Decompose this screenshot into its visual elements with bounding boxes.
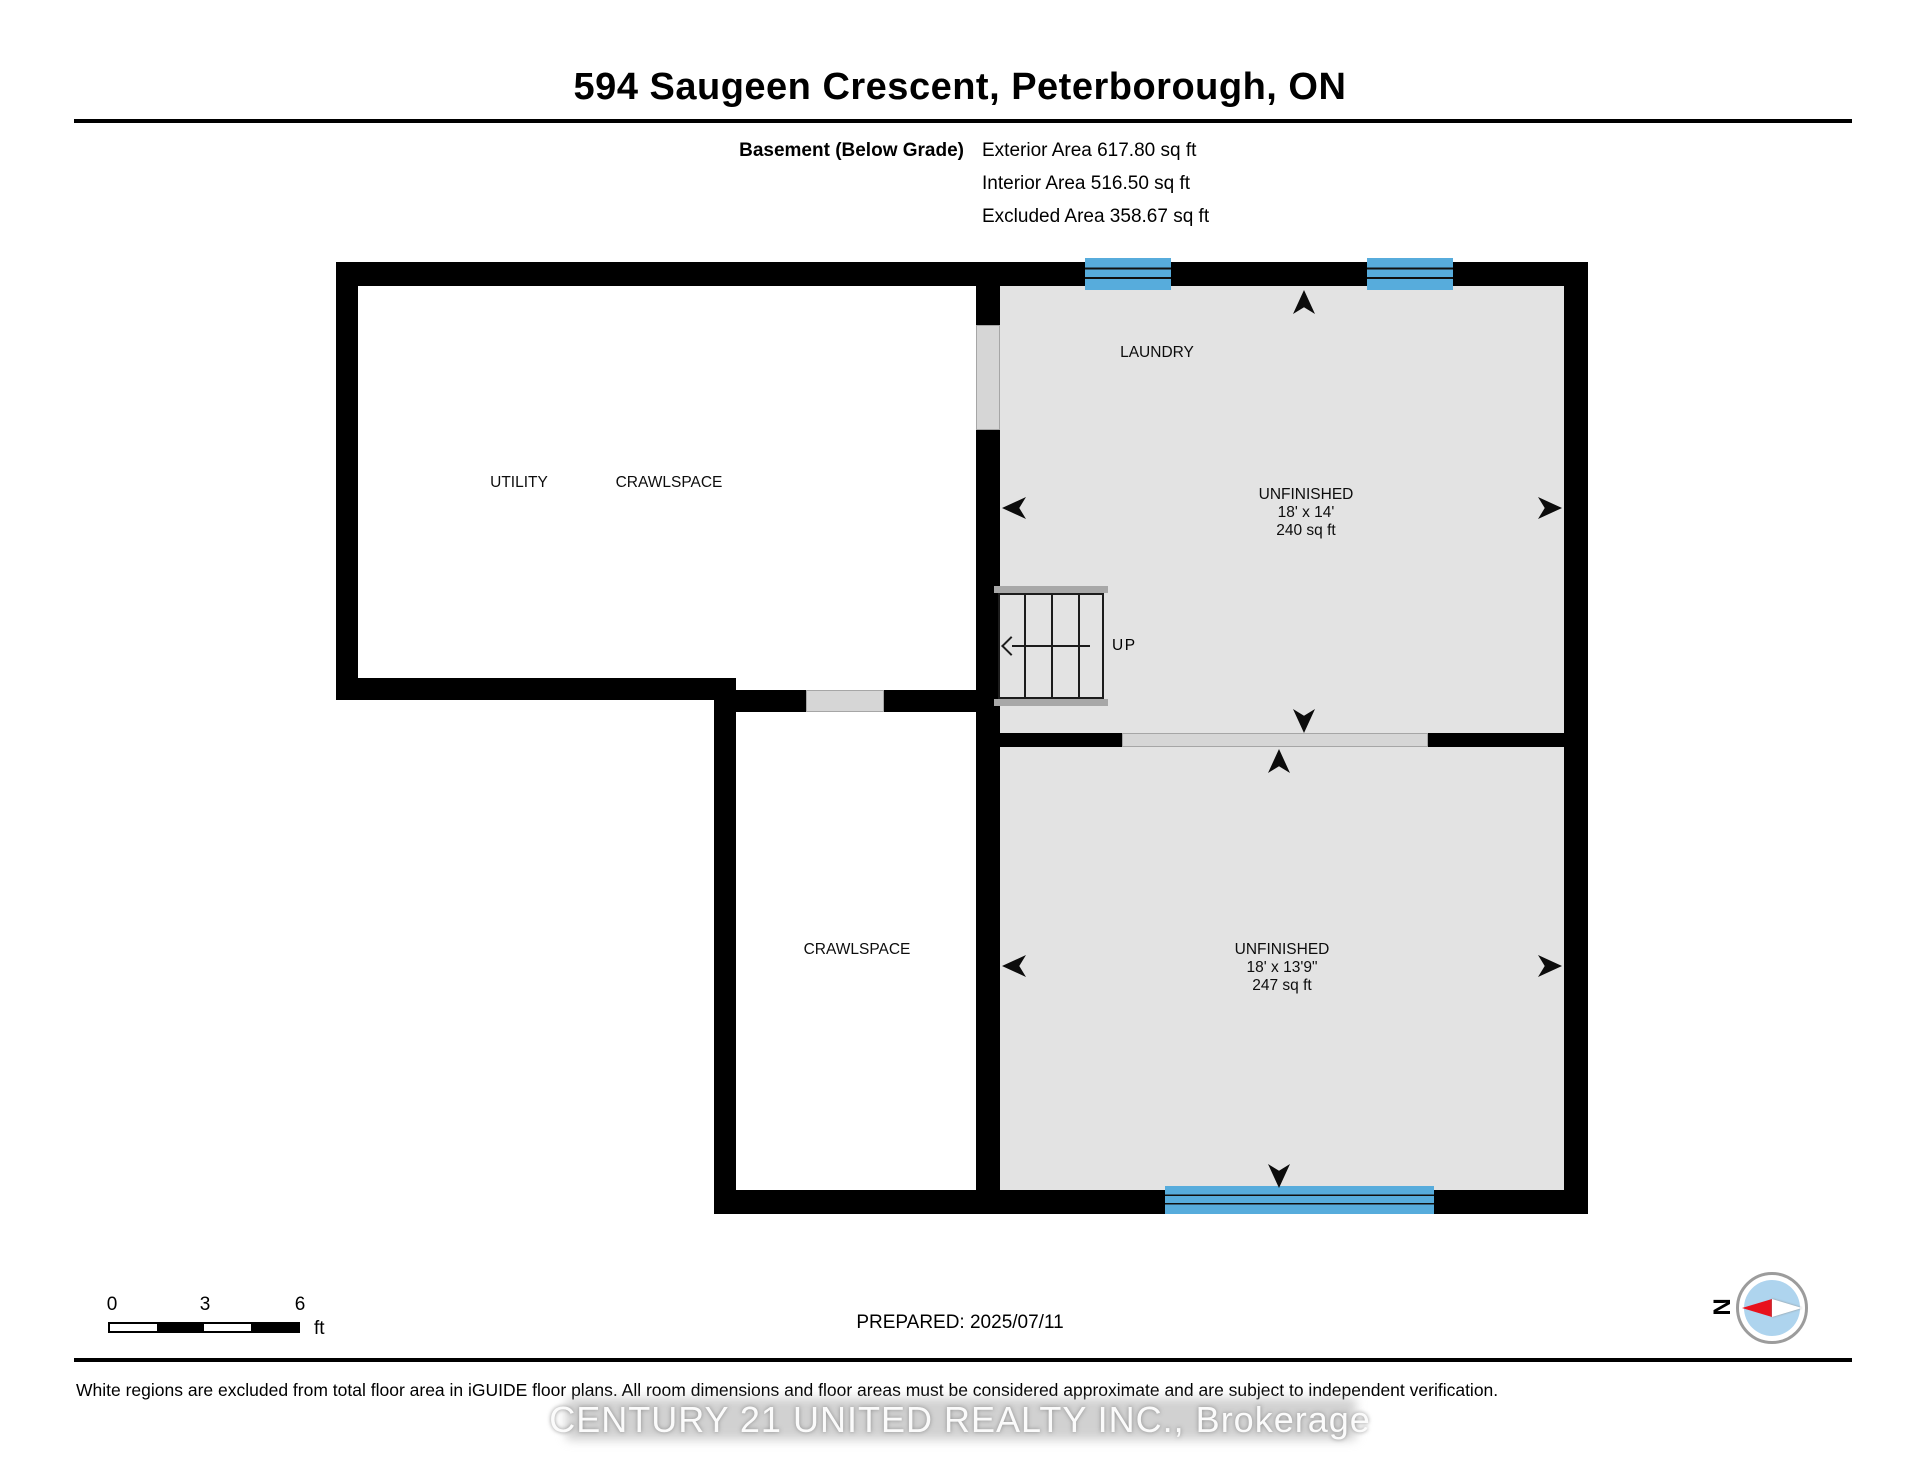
- opening-crawlspace-door: [806, 690, 884, 712]
- compass-north-label: N: [1709, 1292, 1737, 1322]
- watermark-text: CENTURY 21 UNITED REALTY INC., Brokerage: [0, 1399, 1920, 1441]
- excluded-area: Excluded Area 358.67 sq ft: [982, 200, 1209, 233]
- exterior-area: Exterior Area 617.80 sq ft: [982, 134, 1209, 167]
- room-label-utility: UTILITY: [490, 474, 548, 492]
- room-dimensions: 18' x 13'9": [1235, 959, 1330, 977]
- room-name: UNFINISHED: [1235, 941, 1330, 959]
- room-dimensions: 18' x 14': [1259, 504, 1354, 522]
- header-divider: [74, 119, 1852, 123]
- room-name: UNFINISHED: [1259, 486, 1354, 504]
- opening-utility-laundry: [976, 325, 1000, 430]
- compass-north-needle-icon: [1742, 1299, 1772, 1317]
- footer-divider: [74, 1358, 1852, 1362]
- wall-exterior-left: [336, 262, 358, 700]
- room-area: 240 sq ft: [1259, 522, 1354, 540]
- window-bottom: [1165, 1186, 1434, 1214]
- opening-between-unfinished-rooms: [1122, 733, 1428, 747]
- stairs-top-edge: [994, 586, 1108, 593]
- room-area: 247 sq ft: [1235, 977, 1330, 995]
- floor-plan-page: 594 Saugeen Crescent, Peterborough, ON B…: [0, 0, 1920, 1484]
- compass-south-needle-icon: [1772, 1299, 1802, 1317]
- wall-exterior-right: [1564, 262, 1588, 1214]
- wall-crawlspace-left: [714, 678, 736, 1214]
- stairs-up-label: UP: [1112, 637, 1137, 655]
- stairs-direction-arrow-icon: [1012, 645, 1090, 647]
- room-label-laundry: LAUNDRY: [1120, 344, 1194, 362]
- wall-utility-bottom: [336, 678, 736, 700]
- room-label-crawlspace-lower: CRAWLSPACE: [804, 941, 911, 959]
- room-label-unfinished-upper: UNFINISHED 18' x 14' 240 sq ft: [1259, 486, 1354, 540]
- stairs-bottom-edge: [994, 699, 1108, 706]
- window-top-left: [1085, 258, 1171, 290]
- window-top-right: [1367, 258, 1453, 290]
- room-label-crawlspace-upper: CRAWLSPACE: [616, 474, 723, 492]
- page-title: 594 Saugeen Crescent, Peterborough, ON: [0, 66, 1920, 109]
- prepared-date: PREPARED: 2025/07/11: [0, 1312, 1920, 1334]
- floor-name: Basement (Below Grade): [464, 134, 964, 167]
- room-label-unfinished-lower: UNFINISHED 18' x 13'9" 247 sq ft: [1235, 941, 1330, 995]
- wall-exterior-bottom: [714, 1190, 1588, 1214]
- area-summary: Exterior Area 617.80 sq ft Interior Area…: [982, 134, 1209, 233]
- interior-area: Interior Area 516.50 sq ft: [982, 167, 1209, 200]
